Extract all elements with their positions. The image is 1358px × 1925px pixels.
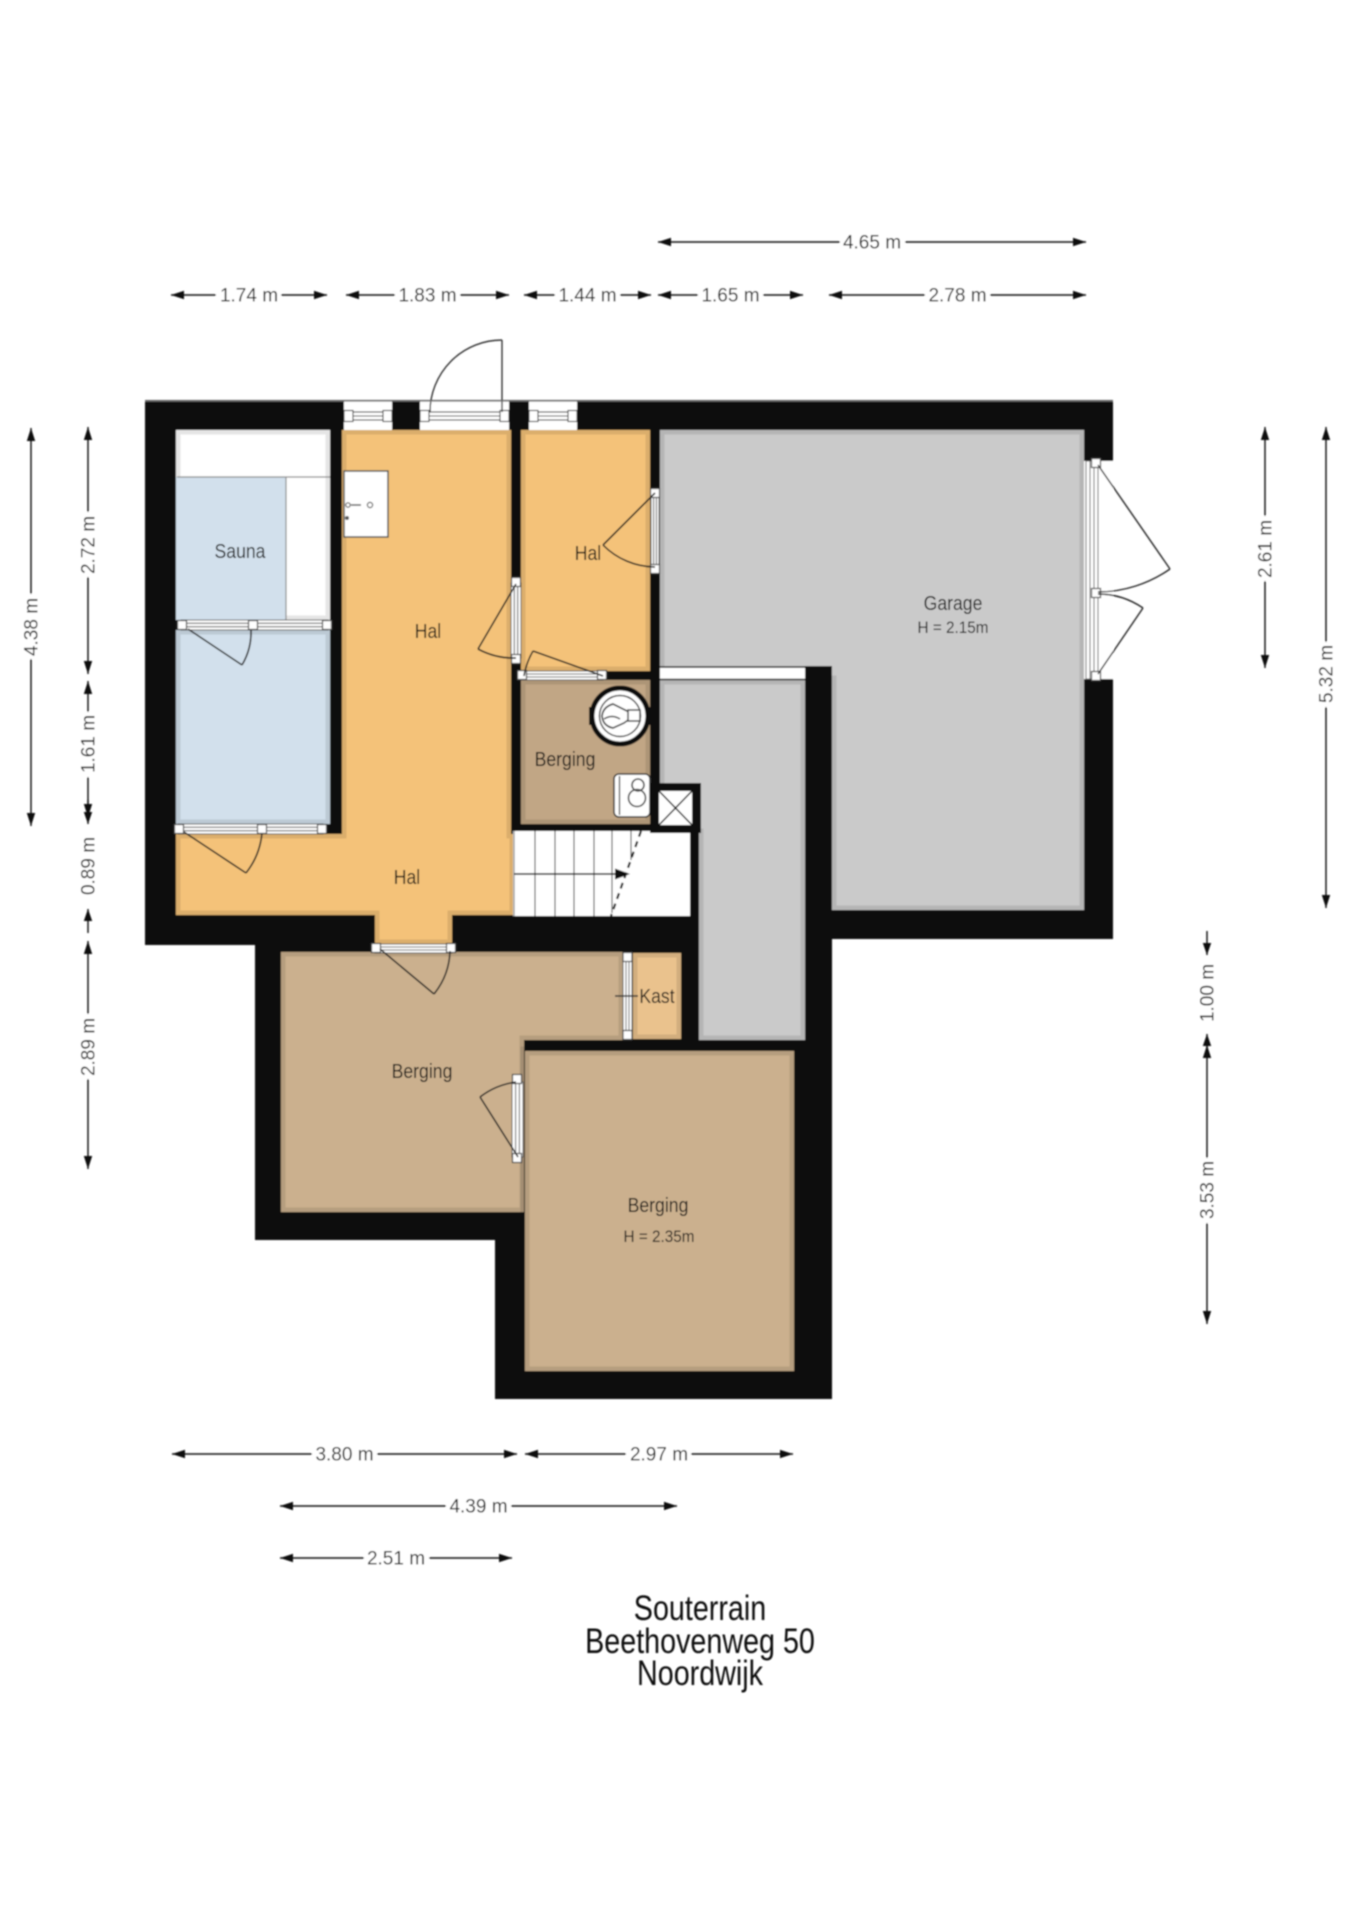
- svg-text:Berging: Berging: [535, 749, 596, 772]
- svg-text:4.38 m: 4.38 m: [22, 598, 43, 656]
- svg-text:2.72 m: 2.72 m: [79, 516, 100, 574]
- svg-text:3.80 m: 3.80 m: [315, 1445, 373, 1466]
- svg-text:1.65 m: 1.65 m: [701, 286, 759, 307]
- svg-text:1.61 m: 1.61 m: [79, 715, 100, 773]
- svg-text:2.51 m: 2.51 m: [367, 1549, 425, 1570]
- svg-text:Hal: Hal: [394, 867, 420, 890]
- svg-text:Hal: Hal: [575, 543, 601, 566]
- svg-text:Noordwijk: Noordwijk: [637, 1653, 764, 1692]
- svg-text:0.89 m: 0.89 m: [79, 837, 100, 895]
- svg-text:2.97 m: 2.97 m: [630, 1445, 688, 1466]
- svg-text:H = 2.15m: H = 2.15m: [918, 618, 989, 637]
- svg-text:4.39 m: 4.39 m: [449, 1497, 507, 1518]
- svg-text:1.74 m: 1.74 m: [220, 286, 278, 307]
- svg-text:Sauna: Sauna: [215, 541, 266, 564]
- svg-text:4.65 m: 4.65 m: [843, 233, 901, 254]
- svg-text:2.89 m: 2.89 m: [79, 1018, 100, 1076]
- svg-text:2.78 m: 2.78 m: [928, 286, 986, 307]
- svg-text:1.83 m: 1.83 m: [398, 286, 456, 307]
- svg-text:Kast: Kast: [639, 986, 675, 1009]
- svg-text:1.00 m: 1.00 m: [1198, 964, 1219, 1022]
- svg-text:Berging: Berging: [392, 1061, 453, 1084]
- svg-text:5.32 m: 5.32 m: [1317, 645, 1338, 703]
- svg-text:Berging: Berging: [628, 1195, 689, 1218]
- svg-text:1.44 m: 1.44 m: [558, 286, 616, 307]
- svg-text:3.53 m: 3.53 m: [1198, 1161, 1219, 1219]
- svg-text:Hal: Hal: [415, 621, 441, 644]
- svg-text:H = 2.35m: H = 2.35m: [624, 1227, 695, 1246]
- svg-text:2.61 m: 2.61 m: [1256, 520, 1277, 578]
- svg-text:Garage: Garage: [924, 593, 983, 616]
